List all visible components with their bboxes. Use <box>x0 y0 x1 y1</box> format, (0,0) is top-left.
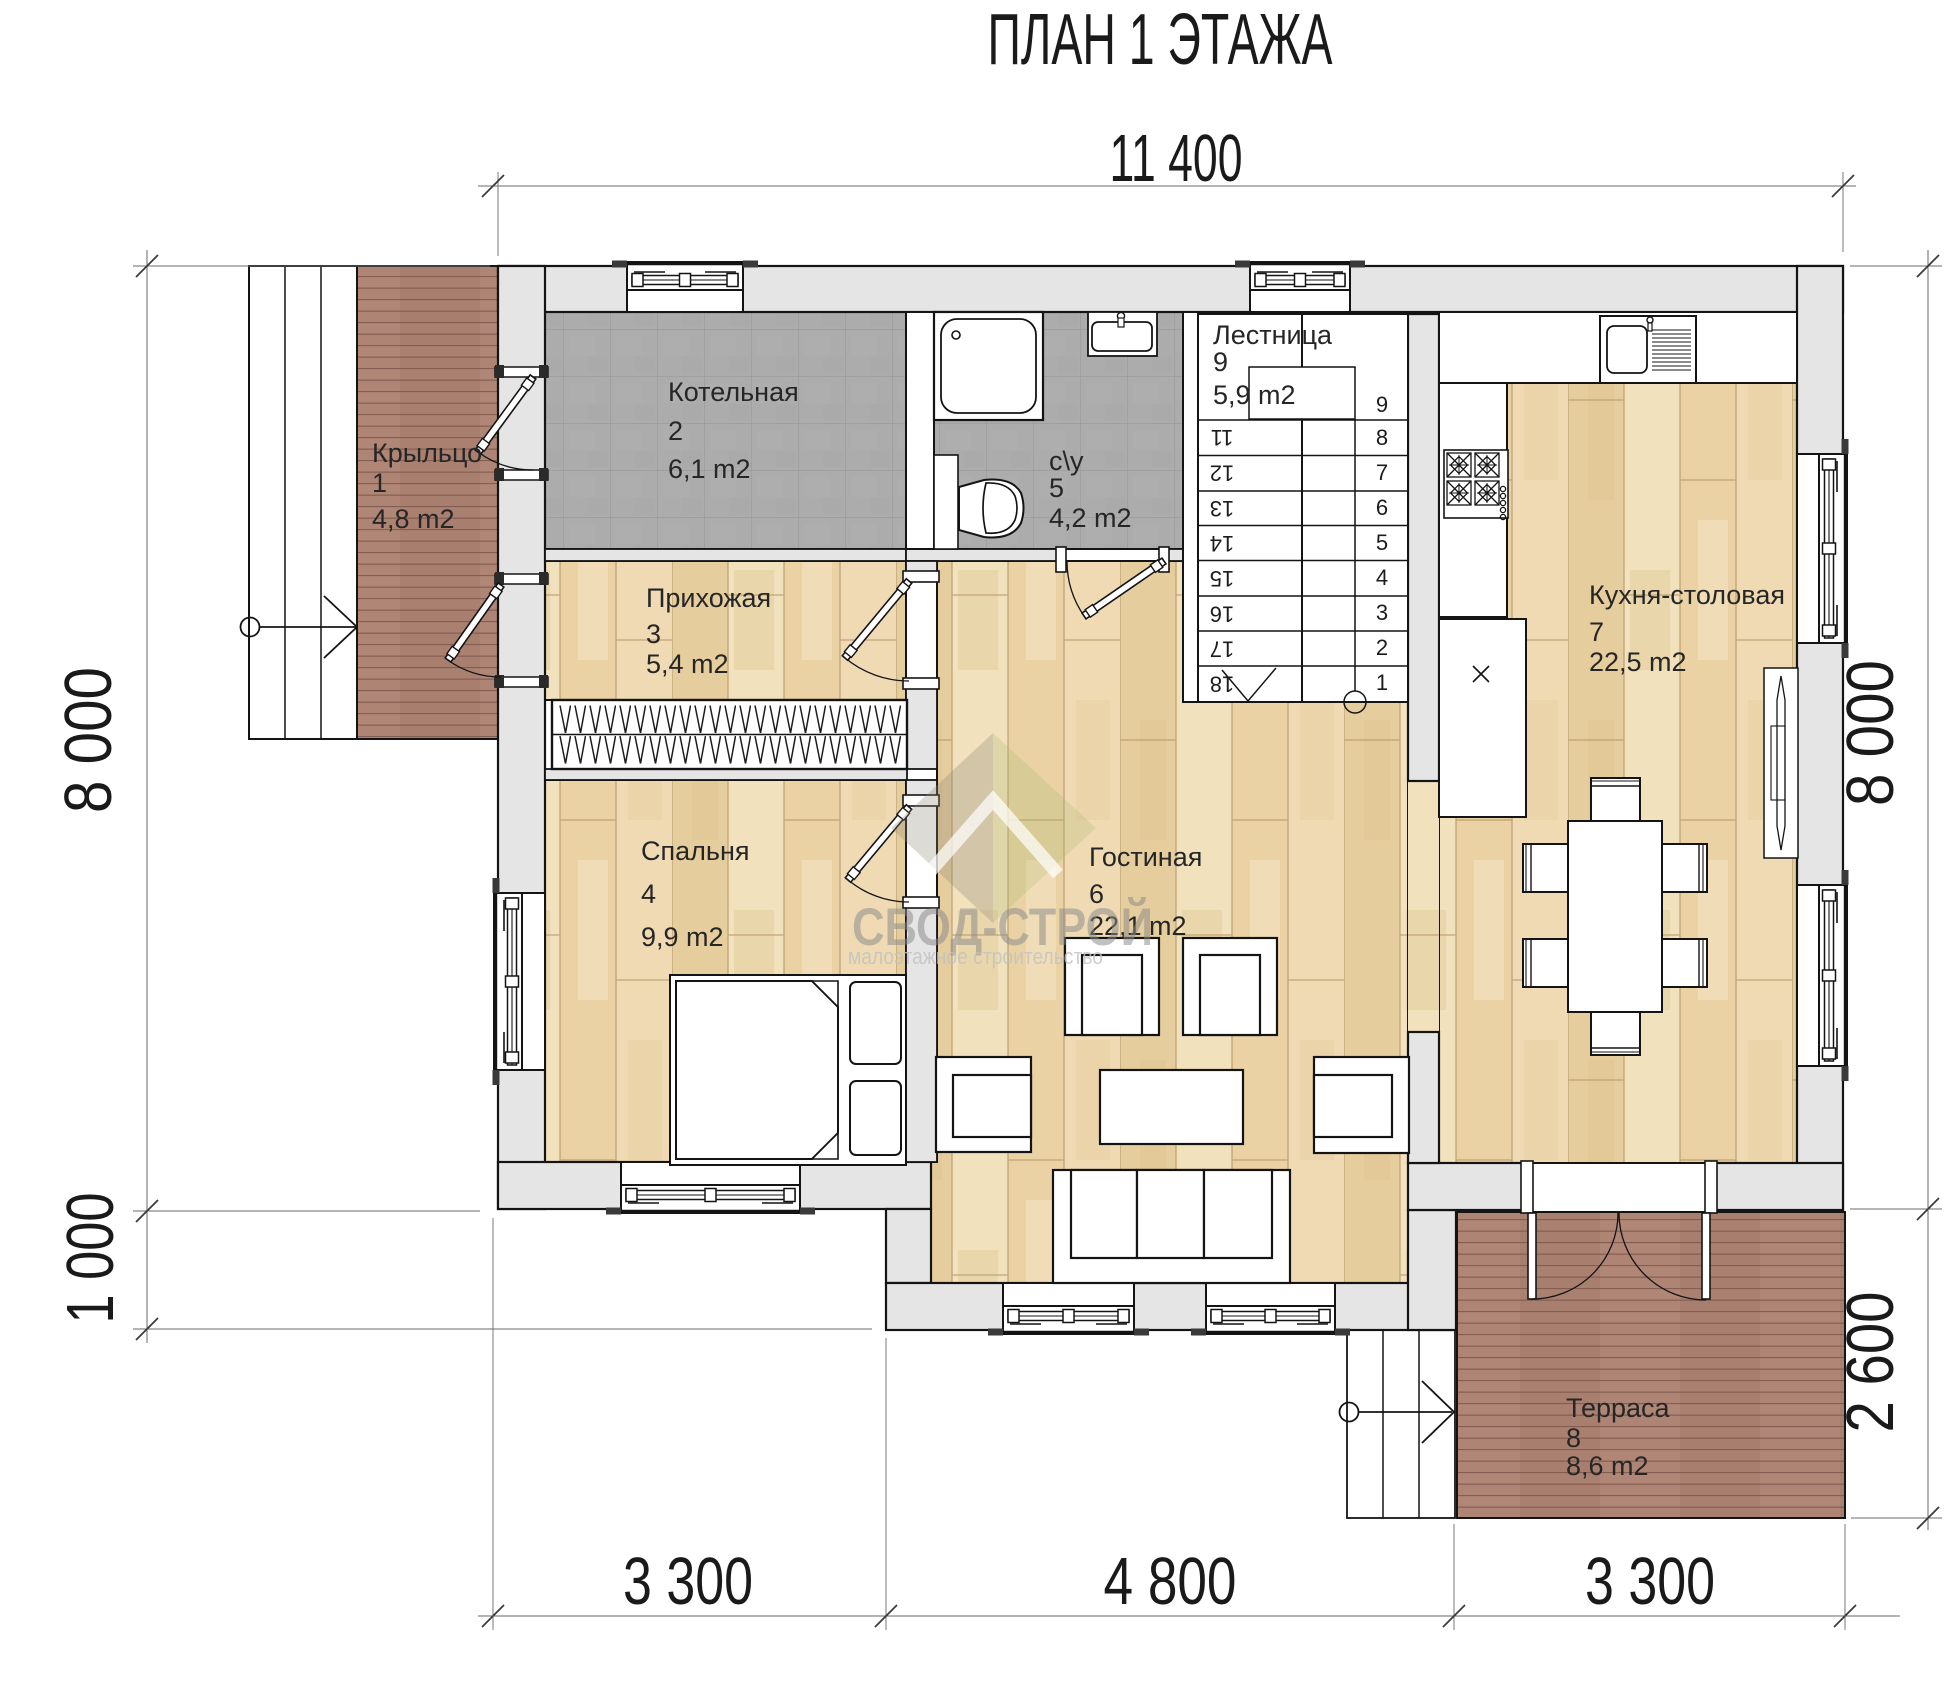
svg-text:14: 14 <box>1210 531 1234 556</box>
svg-text:22,5 m2: 22,5 m2 <box>1589 647 1687 677</box>
svg-text:1: 1 <box>1376 670 1388 695</box>
svg-text:5: 5 <box>1376 530 1388 555</box>
svg-text:4,8 m2: 4,8 m2 <box>372 504 455 534</box>
svg-text:13: 13 <box>1210 496 1234 521</box>
svg-text:11: 11 <box>1211 425 1234 450</box>
svg-text:11 400: 11 400 <box>1110 121 1243 196</box>
svg-text:3: 3 <box>1376 600 1388 625</box>
svg-text:9,9 m2: 9,9 m2 <box>641 922 724 952</box>
svg-text:Крыльцо: Крыльцо <box>372 438 482 468</box>
svg-text:Гостиная: Гостиная <box>1089 842 1202 872</box>
svg-text:4: 4 <box>641 879 656 909</box>
svg-text:4,2 m2: 4,2 m2 <box>1049 503 1132 533</box>
svg-text:8 000: 8 000 <box>51 667 126 813</box>
svg-text:15: 15 <box>1210 566 1234 591</box>
svg-text:8,6 m2: 8,6 m2 <box>1566 1451 1649 1481</box>
svg-text:1 000: 1 000 <box>53 1193 128 1324</box>
svg-text:Прихожая: Прихожая <box>646 583 771 613</box>
svg-text:8: 8 <box>1376 425 1388 450</box>
svg-text:5,4 m2: 5,4 m2 <box>646 649 729 679</box>
svg-text:12: 12 <box>1210 461 1234 486</box>
svg-text:9: 9 <box>1213 347 1228 377</box>
svg-text:2: 2 <box>1376 635 1388 660</box>
svg-text:6,1 m2: 6,1 m2 <box>668 454 751 484</box>
svg-text:6: 6 <box>1376 495 1388 520</box>
svg-text:3: 3 <box>646 619 661 649</box>
svg-text:2: 2 <box>668 416 683 446</box>
svg-text:Спальня: Спальня <box>641 836 750 866</box>
svg-text:ПЛАН 1 ЭТАЖА: ПЛАН 1 ЭТАЖА <box>988 0 1333 80</box>
svg-text:3 300: 3 300 <box>623 1544 753 1619</box>
svg-text:8 000: 8 000 <box>1833 660 1908 806</box>
svg-text:Лестница: Лестница <box>1213 320 1333 350</box>
svg-text:Кухня-столовая: Кухня-столовая <box>1589 580 1785 610</box>
svg-text:16: 16 <box>1210 602 1234 627</box>
svg-text:3 300: 3 300 <box>1585 1544 1715 1619</box>
svg-text:17: 17 <box>1210 637 1234 662</box>
svg-text:7: 7 <box>1376 460 1388 485</box>
svg-text:4: 4 <box>1376 565 1388 590</box>
svg-text:9: 9 <box>1376 392 1388 417</box>
svg-text:7: 7 <box>1589 617 1604 647</box>
svg-text:18: 18 <box>1210 672 1234 697</box>
svg-text:5: 5 <box>1049 473 1064 503</box>
svg-text:4 800: 4 800 <box>1104 1544 1237 1619</box>
svg-text:Котельная: Котельная <box>668 377 799 407</box>
svg-text:малоэтажное строительство: малоэтажное строительство <box>848 944 1103 969</box>
svg-text:1: 1 <box>372 468 387 498</box>
svg-text:8: 8 <box>1566 1423 1581 1453</box>
svg-text:2 600: 2 600 <box>1833 1292 1908 1433</box>
svg-text:Терраса: Терраса <box>1566 1393 1671 1423</box>
svg-text:5,9 m2: 5,9 m2 <box>1213 380 1296 410</box>
svg-text:с\у: с\у <box>1049 446 1084 476</box>
